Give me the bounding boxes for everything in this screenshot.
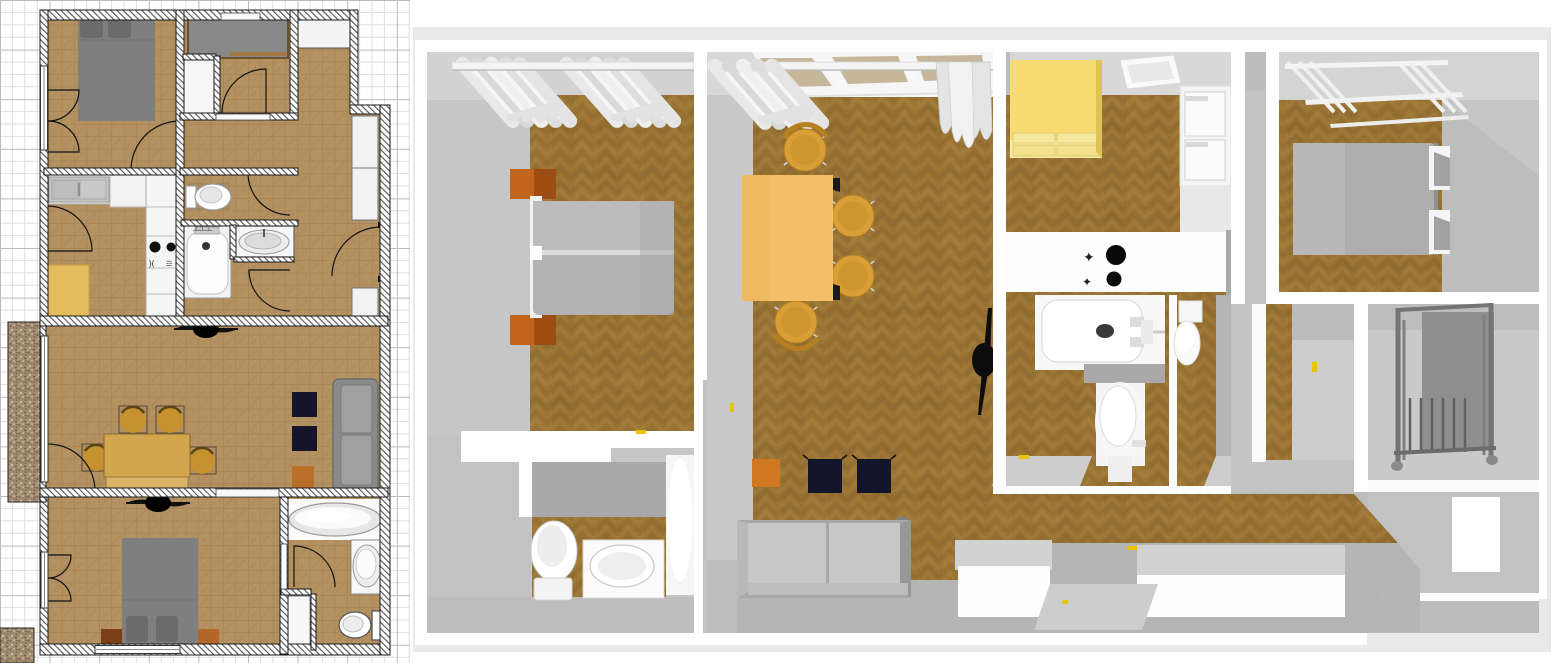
svg-text:)(: )( (149, 259, 155, 268)
svg-text:☲: ☲ (166, 261, 172, 268)
svg-text:✦: ✦ (1083, 249, 1095, 265)
svg-text:✦: ✦ (1082, 275, 1092, 289)
